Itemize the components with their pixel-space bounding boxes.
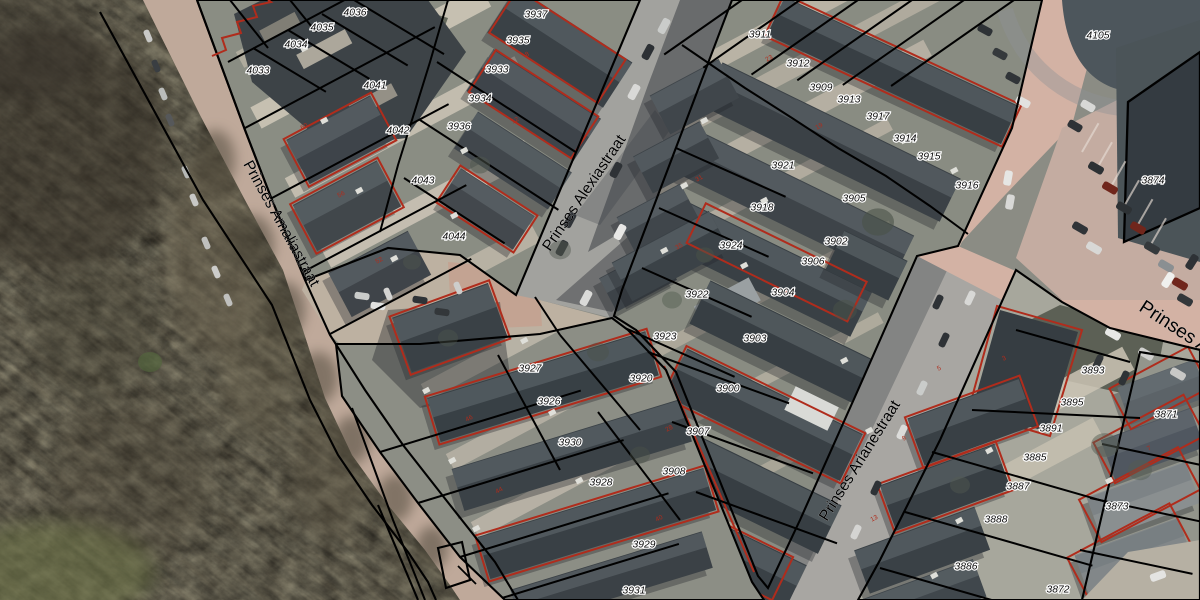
svg-text:3873: 3873 [1106, 502, 1129, 513]
svg-text:3921: 3921 [772, 161, 795, 172]
svg-text:3911: 3911 [749, 30, 771, 41]
svg-text:3906: 3906 [802, 257, 825, 268]
svg-text:3871: 3871 [1155, 410, 1178, 421]
svg-text:4105: 4105 [1087, 31, 1110, 42]
svg-text:3927: 3927 [519, 364, 543, 375]
svg-text:3916: 3916 [956, 181, 979, 192]
svg-text:3914: 3914 [894, 134, 917, 145]
svg-text:3931: 3931 [623, 586, 646, 597]
svg-text:3913: 3913 [838, 95, 861, 106]
svg-text:3895: 3895 [1061, 398, 1084, 409]
svg-text:3924: 3924 [720, 241, 743, 252]
svg-text:4033: 4033 [247, 66, 270, 77]
svg-text:3933: 3933 [486, 65, 509, 76]
svg-text:3902: 3902 [825, 237, 848, 248]
svg-text:3874: 3874 [1142, 176, 1165, 187]
svg-text:3907: 3907 [687, 427, 711, 438]
svg-text:3915: 3915 [918, 152, 941, 163]
svg-text:3886: 3886 [955, 562, 978, 573]
svg-text:3885: 3885 [1024, 453, 1047, 464]
svg-text:3920: 3920 [630, 374, 653, 385]
svg-text:4043: 4043 [412, 176, 435, 187]
svg-text:3930: 3930 [559, 438, 582, 449]
svg-text:3900: 3900 [717, 384, 740, 395]
svg-text:3929: 3929 [633, 540, 656, 551]
svg-text:3893: 3893 [1082, 366, 1105, 377]
svg-text:3934: 3934 [469, 94, 492, 105]
svg-text:3872: 3872 [1047, 585, 1070, 596]
svg-text:3891: 3891 [1040, 424, 1063, 435]
svg-text:3935: 3935 [507, 36, 530, 47]
svg-text:3918: 3918 [751, 203, 774, 214]
svg-text:3923: 3923 [654, 332, 677, 343]
svg-text:4035: 4035 [311, 23, 334, 34]
svg-text:3936: 3936 [448, 122, 471, 133]
svg-text:4034: 4034 [285, 40, 308, 51]
svg-text:3917: 3917 [867, 112, 891, 123]
svg-text:3937: 3937 [525, 10, 549, 21]
svg-text:3926: 3926 [538, 397, 561, 408]
svg-text:4042: 4042 [387, 126, 410, 137]
svg-text:3922: 3922 [686, 290, 709, 301]
svg-text:3928: 3928 [590, 478, 613, 489]
svg-text:3909: 3909 [810, 83, 833, 94]
svg-text:3888: 3888 [985, 515, 1008, 526]
svg-text:3905: 3905 [843, 194, 866, 205]
svg-text:3903: 3903 [744, 334, 767, 345]
svg-text:4044: 4044 [443, 232, 466, 243]
svg-text:3912: 3912 [787, 59, 810, 70]
svg-text:3904: 3904 [772, 288, 795, 299]
svg-text:4036: 4036 [344, 8, 367, 19]
svg-text:3908: 3908 [663, 467, 686, 478]
svg-text:4041: 4041 [364, 81, 387, 92]
svg-text:3887: 3887 [1007, 482, 1031, 493]
